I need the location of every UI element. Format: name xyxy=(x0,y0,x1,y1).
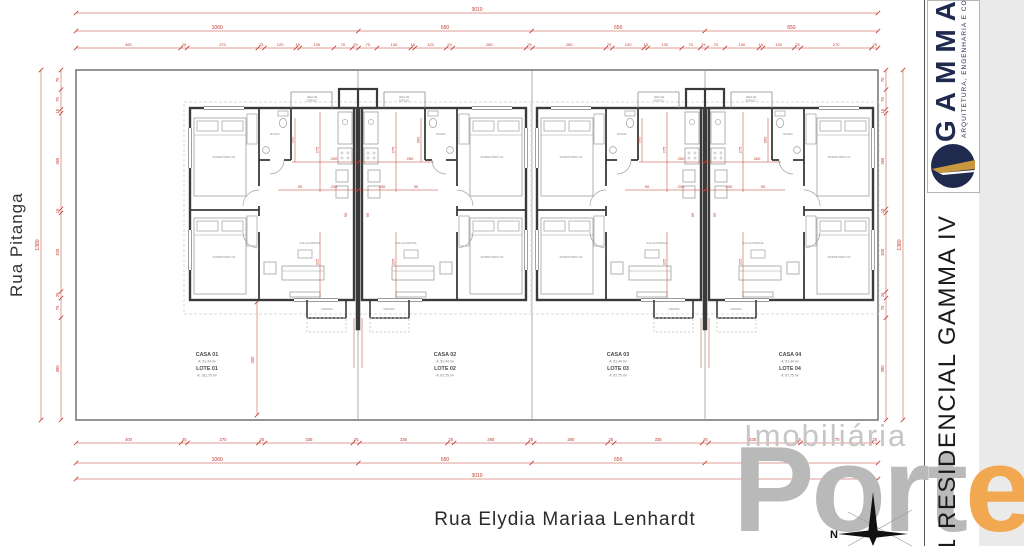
room-label: DORMITÓRIO 01 xyxy=(560,154,583,159)
room-label: VARANDA xyxy=(668,308,680,311)
room-label: VARANDA xyxy=(730,308,742,311)
exterior-wall xyxy=(362,108,526,300)
dim-label: 95 xyxy=(712,212,717,217)
tv-rack xyxy=(396,292,426,297)
sink xyxy=(794,147,801,154)
exterior-wall xyxy=(537,108,701,300)
casa-area-label: A: 51,44 m² xyxy=(436,360,454,364)
dim-label: 650 xyxy=(787,457,796,463)
closet xyxy=(594,114,604,144)
stove xyxy=(364,148,378,164)
sink xyxy=(610,147,617,154)
room-label: DORMITÓRIO 01 xyxy=(481,154,504,159)
dim-label: 1060 xyxy=(212,25,223,31)
room-label: SALA/COZINHA xyxy=(395,241,416,245)
dim-label: 300 xyxy=(55,248,60,256)
tv-rack xyxy=(743,292,773,297)
stove-burner xyxy=(341,157,343,159)
dim-label: 325 xyxy=(391,258,396,265)
toilet xyxy=(776,118,783,127)
compass-cross xyxy=(838,530,908,538)
dim-label: 275 xyxy=(662,146,667,153)
dim-label: 1380 xyxy=(35,239,41,250)
toilet xyxy=(626,118,633,127)
dim-label: 1060 xyxy=(212,457,223,463)
dim-label: 120 xyxy=(427,42,434,47)
dim-label: 325 xyxy=(662,258,667,265)
stove-burner xyxy=(688,152,690,154)
dim-label: 230 xyxy=(678,184,685,189)
stove-burner xyxy=(373,152,375,154)
bed-pillow xyxy=(222,221,243,231)
closet xyxy=(247,216,257,246)
room-label: BANHO xyxy=(436,132,445,136)
bed-pillow xyxy=(222,121,243,131)
dim-label: 270 xyxy=(220,437,228,442)
room-label: VARANDA xyxy=(383,308,395,311)
dim-label: 15 xyxy=(55,108,60,113)
exterior-wall xyxy=(190,108,354,300)
dim-label: 325 xyxy=(738,258,743,265)
room-label: DORMITÓRIO 02 xyxy=(828,254,851,259)
toilet-tank xyxy=(428,111,438,116)
dim-label: 15 xyxy=(55,208,60,213)
dim-label: 230 xyxy=(379,184,386,189)
tv-rack xyxy=(290,292,320,297)
dim-label: 90 xyxy=(298,184,303,189)
casa-label: CASA 01 xyxy=(196,352,219,358)
door-arc xyxy=(804,232,820,248)
dim-label: 70 xyxy=(366,42,371,47)
room-label: SALA/COZINHA xyxy=(646,241,667,245)
toilet-tank xyxy=(775,111,785,116)
stove-burner xyxy=(688,157,690,159)
party-wall xyxy=(356,108,360,330)
dim-label: 400 xyxy=(125,42,132,47)
kitchen-counter xyxy=(685,112,699,144)
sofa xyxy=(392,266,434,280)
stove-burner xyxy=(347,157,349,159)
toilet-tank xyxy=(278,111,288,116)
gamma-logo-mark xyxy=(929,143,977,189)
dim-label: 25 xyxy=(259,42,264,47)
sheet-title: 1 RESIDENCIAL GAMMA IV xyxy=(934,214,962,546)
dim-label: 95 xyxy=(343,212,348,217)
room-label: DORMITÓRIO 02 xyxy=(213,254,236,259)
dining-table xyxy=(683,170,695,182)
armchair xyxy=(787,262,799,274)
dim-label: 270 xyxy=(832,437,840,442)
room-label: DORMITÓRIO 02 xyxy=(560,254,583,259)
dim-label: 275 xyxy=(391,146,396,153)
door-arc xyxy=(590,190,606,206)
dim-label: 15 xyxy=(880,208,885,213)
dim-label: 300 xyxy=(880,248,885,256)
stove-burner xyxy=(714,157,716,159)
dim-label: 25 xyxy=(527,42,532,47)
dim-label: 200 xyxy=(331,156,338,161)
sink xyxy=(263,147,270,154)
kitchen-counter xyxy=(364,112,378,144)
room-label: BANHO xyxy=(783,132,792,136)
room-label: BANHO xyxy=(270,132,279,136)
dining-table xyxy=(368,170,380,182)
door-arc xyxy=(432,160,446,174)
sofa xyxy=(282,266,324,280)
dim-label: 95 xyxy=(365,212,370,217)
lote-label: LOTE 04 xyxy=(779,366,801,372)
armchair xyxy=(264,262,276,274)
compass-north-label: N xyxy=(830,529,838,541)
casa-area-label: A: 51,44 m² xyxy=(609,360,627,364)
dim-label: 360 xyxy=(416,136,421,143)
stove xyxy=(338,148,352,164)
dim-label: 650 xyxy=(614,25,623,31)
dim-label: 25 xyxy=(182,437,187,442)
dim-label: 230 xyxy=(331,184,338,189)
kitchen-sink xyxy=(689,119,694,124)
bed-pillow xyxy=(197,221,218,231)
coffee-table xyxy=(645,250,659,258)
room-label: SERVIÇO xyxy=(654,100,665,103)
dim-label: 130 xyxy=(661,42,668,47)
dim-label: 75 xyxy=(55,97,60,102)
dim-label: 75 xyxy=(880,305,885,310)
bed-pillow xyxy=(845,121,866,131)
porch-slab xyxy=(307,318,346,332)
dim-label: 120 xyxy=(775,42,782,47)
stove-burner xyxy=(694,157,696,159)
kitchen-counter xyxy=(338,112,352,144)
sofa xyxy=(629,266,671,280)
room-label: SALA/COZINHA xyxy=(742,241,763,245)
stove-burner xyxy=(347,152,349,154)
dim-label: 335 xyxy=(749,437,757,442)
stove-burner xyxy=(367,157,369,159)
door-arc xyxy=(779,160,793,174)
dim-label: 230 xyxy=(726,184,733,189)
floor-plan-canvas: 3010106065065065040025270251201513070257… xyxy=(0,0,1024,546)
dim-label: 25 xyxy=(353,42,358,47)
dim-label: 25 xyxy=(701,42,706,47)
porch-slab xyxy=(370,318,409,332)
dim-label: 75 xyxy=(880,97,885,102)
stove-burner xyxy=(720,152,722,154)
sink xyxy=(447,147,454,154)
dim-label: 90 xyxy=(414,184,419,189)
bed-pillow xyxy=(569,121,590,131)
dim-label: 650 xyxy=(441,457,450,463)
stove-burner xyxy=(341,152,343,154)
dim-label: 90 xyxy=(645,184,650,189)
dim-label: 260 xyxy=(407,156,414,161)
closet xyxy=(459,114,469,144)
room-label: BANHO xyxy=(617,132,626,136)
stove-burner xyxy=(720,157,722,159)
dim-label: 280 xyxy=(486,42,493,47)
casa-label: CASA 04 xyxy=(779,352,802,358)
door-arc xyxy=(243,190,259,206)
dim-label: 15 xyxy=(411,42,416,47)
lote-label: LOTE 01 xyxy=(196,366,218,372)
porch-slab xyxy=(654,318,693,332)
dining-table xyxy=(336,186,348,198)
dim-label: 365 xyxy=(880,157,885,165)
dining-table xyxy=(336,170,348,182)
door-arc xyxy=(617,160,631,174)
dim-label: 75 xyxy=(55,305,60,310)
dim-label: 335 xyxy=(655,437,663,442)
bed-pillow xyxy=(820,221,841,231)
dim-label: 390 xyxy=(55,365,60,373)
tv-rack xyxy=(637,292,667,297)
door-arc xyxy=(590,232,606,248)
dim-label: 1380 xyxy=(897,239,903,250)
street-label-left: Rua Pitanga xyxy=(7,192,27,297)
closet xyxy=(594,216,604,246)
bed-pillow xyxy=(845,221,866,231)
closet xyxy=(806,114,816,144)
door-arc xyxy=(457,190,473,206)
dim-label: 95 xyxy=(690,212,695,217)
room-label: DORMITÓRIO 02 xyxy=(481,254,504,259)
casa-label: CASA 02 xyxy=(434,352,457,358)
dim-label: 25 xyxy=(872,437,877,442)
coffee-table xyxy=(298,250,312,258)
toilet xyxy=(279,118,286,127)
gamma-logo-text: GAMMA xyxy=(930,0,962,142)
dim-label: 25 xyxy=(528,437,533,442)
room-label: SERVIÇO xyxy=(307,100,318,103)
dim-label: 390 xyxy=(880,365,885,373)
stove-burner xyxy=(714,152,716,154)
bed-pillow xyxy=(544,221,565,231)
dim-label: 275 xyxy=(738,146,743,153)
casa-area-label: A: 51,44 m² xyxy=(781,360,799,364)
lote-area-label: A: 87,75 m² xyxy=(609,374,627,378)
dim-label: 325 xyxy=(315,258,320,265)
dim-label: 3010 xyxy=(471,473,482,479)
dim-label: 200 xyxy=(678,156,685,161)
dim-label: 25 xyxy=(609,437,614,442)
bed-pillow xyxy=(498,121,519,131)
dim-label: 365 xyxy=(55,157,60,165)
bed-pillow xyxy=(473,221,494,231)
room-label: DORMITÓRIO 01 xyxy=(213,154,236,159)
closet xyxy=(806,216,816,246)
dim-label: 70 xyxy=(689,42,694,47)
dim-label: 25 xyxy=(259,437,264,442)
dim-label: 120 xyxy=(625,42,632,47)
dim-label: 25 xyxy=(703,437,708,442)
armchair xyxy=(611,262,623,274)
dim-label: 15 xyxy=(880,108,885,113)
dim-label: 70 xyxy=(714,42,719,47)
dim-label: 25 xyxy=(182,42,187,47)
room-label: SALA/COZINHA xyxy=(299,241,320,245)
dim-label: 25 xyxy=(795,42,800,47)
exterior-wall xyxy=(709,108,873,300)
room-label: SERVIÇO xyxy=(399,100,410,103)
compass-rose: N xyxy=(820,480,940,546)
kitchen-sink xyxy=(715,119,720,124)
stove-burner xyxy=(367,152,369,154)
dim-label: 360 xyxy=(637,136,642,143)
lote-area-label: A: 87,75 m² xyxy=(436,374,454,378)
dim-label: 90 xyxy=(761,184,766,189)
bed-pillow xyxy=(820,121,841,131)
lote-label: LOTE 02 xyxy=(434,366,456,372)
dim-label: 25 xyxy=(880,292,885,297)
casa-label: CASA 03 xyxy=(607,352,630,358)
stove-burner xyxy=(694,152,696,154)
dim-label: 3010 xyxy=(471,7,482,13)
coffee-table xyxy=(751,250,765,258)
dim-label: 25 xyxy=(448,437,453,442)
dim-label: 75 xyxy=(55,77,60,82)
dim-label: 335 xyxy=(400,437,408,442)
sofa xyxy=(739,266,781,280)
dim-label: 400 xyxy=(250,356,255,364)
dim-label: 15 xyxy=(644,42,649,47)
dim-label: 400 xyxy=(125,437,133,442)
dim-label: 650 xyxy=(787,25,796,31)
stove xyxy=(685,148,699,164)
dim-label: 275 xyxy=(315,146,320,153)
kitchen-sink xyxy=(342,119,347,124)
stove xyxy=(711,148,725,164)
dim-label: 75 xyxy=(880,77,885,82)
bed-pillow xyxy=(197,121,218,131)
drawing-sheet: 3010106065065065040025270251201513070257… xyxy=(0,0,1024,546)
bed-pillow xyxy=(544,121,565,131)
closet xyxy=(459,216,469,246)
dim-label: 270 xyxy=(219,42,226,47)
bed-pillow xyxy=(473,121,494,131)
dim-label: 15 xyxy=(759,42,764,47)
room-label: DORMITÓRIO 01 xyxy=(828,154,851,159)
lote-label: LOTE 03 xyxy=(607,366,629,372)
closet xyxy=(247,114,257,144)
kitchen-counter xyxy=(711,112,725,144)
bed-pillow xyxy=(498,221,519,231)
casa-area-label: A: 51,44 m² xyxy=(198,360,216,364)
dim-label: 25 xyxy=(873,42,878,47)
dim-label: 120 xyxy=(277,42,284,47)
dim-label: 650 xyxy=(614,457,623,463)
party-wall xyxy=(703,108,707,330)
dining-table xyxy=(683,186,695,198)
dim-label: 130 xyxy=(313,42,320,47)
dim-label: 280 xyxy=(487,437,495,442)
dim-label: 360 xyxy=(763,136,768,143)
toilet-tank xyxy=(625,111,635,116)
dim-label: 70 xyxy=(341,42,346,47)
dim-label: 280 xyxy=(567,437,575,442)
door-arc xyxy=(270,160,284,174)
kitchen-sink xyxy=(368,119,373,124)
gamma-logo-tagline: ARQUITETURA, ENGENHARIA E CONS xyxy=(961,0,968,138)
dim-label: 650 xyxy=(441,25,450,31)
bed-pillow xyxy=(569,221,590,231)
dim-label: 335 xyxy=(305,437,313,442)
dim-label: 360 xyxy=(290,136,295,143)
door-arc xyxy=(804,190,820,206)
street-label-bottom: Rua Elydia Mariaa Lenhardt xyxy=(380,509,750,531)
dim-label: 25 xyxy=(447,42,452,47)
coffee-table xyxy=(404,250,418,258)
dim-label: 25 xyxy=(354,437,359,442)
porch-slab xyxy=(717,318,756,332)
dim-label: 25 xyxy=(55,292,60,297)
room-label: SERVIÇO xyxy=(746,100,757,103)
lote-area-label: A: 87,75 m² xyxy=(781,374,799,378)
door-arc xyxy=(457,232,473,248)
dim-label: 270 xyxy=(833,42,840,47)
lote-area-label: A: 181,75 m² xyxy=(197,374,217,378)
dining-table xyxy=(715,170,727,182)
dim-label: 130 xyxy=(739,42,746,47)
dim-label: 15 xyxy=(296,42,301,47)
armchair xyxy=(440,262,452,274)
door-arc xyxy=(243,232,259,248)
dim-label: 280 xyxy=(566,42,573,47)
stove-burner xyxy=(373,157,375,159)
dim-label: 130 xyxy=(391,42,398,47)
dim-label: 25 xyxy=(607,42,612,47)
room-label: VARANDA xyxy=(321,308,333,311)
dim-label: 15 xyxy=(796,437,801,442)
dim-label: 260 xyxy=(754,156,761,161)
toilet xyxy=(429,118,436,127)
